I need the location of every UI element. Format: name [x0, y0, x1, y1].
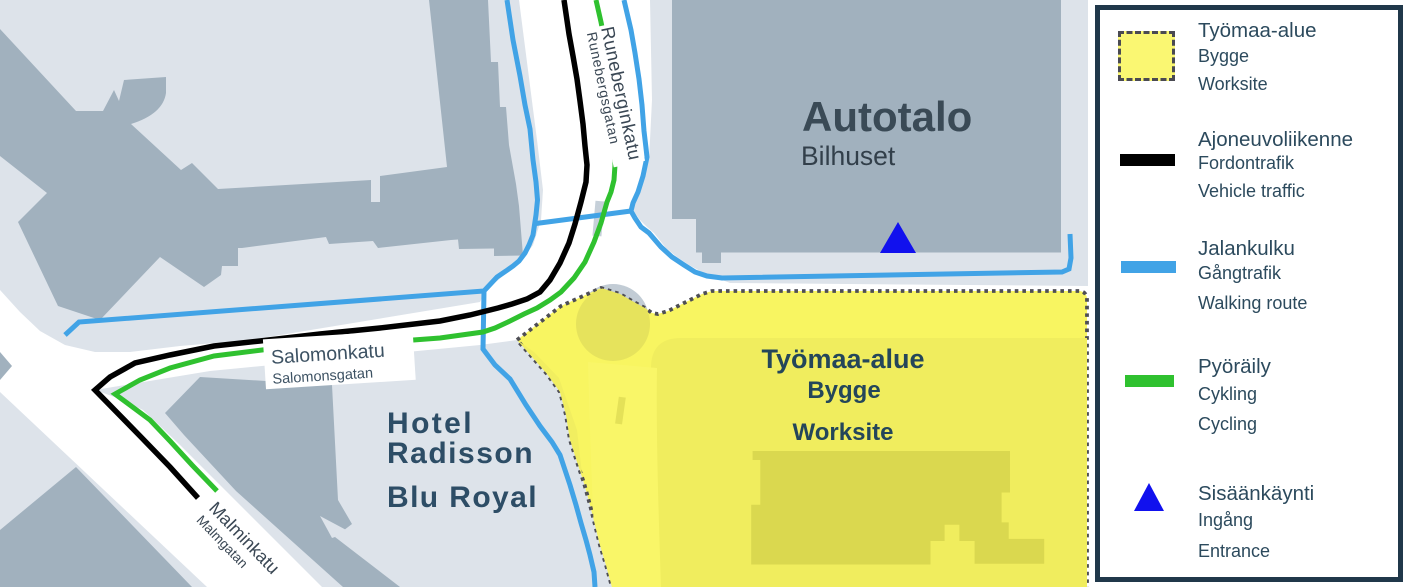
svg-text:Bygge: Bygge — [807, 377, 880, 404]
svg-text:Radisson: Radisson — [387, 437, 534, 470]
svg-text:Worksite: Worksite — [793, 419, 894, 446]
svg-text:Blu Royal: Blu Royal — [387, 481, 538, 514]
svg-text:Työmaa-alue: Työmaa-alue — [761, 344, 924, 374]
svg-text:Bilhuset: Bilhuset — [801, 141, 896, 171]
svg-text:Hotel: Hotel — [387, 407, 474, 440]
svg-text:Autotalo: Autotalo — [802, 93, 972, 140]
